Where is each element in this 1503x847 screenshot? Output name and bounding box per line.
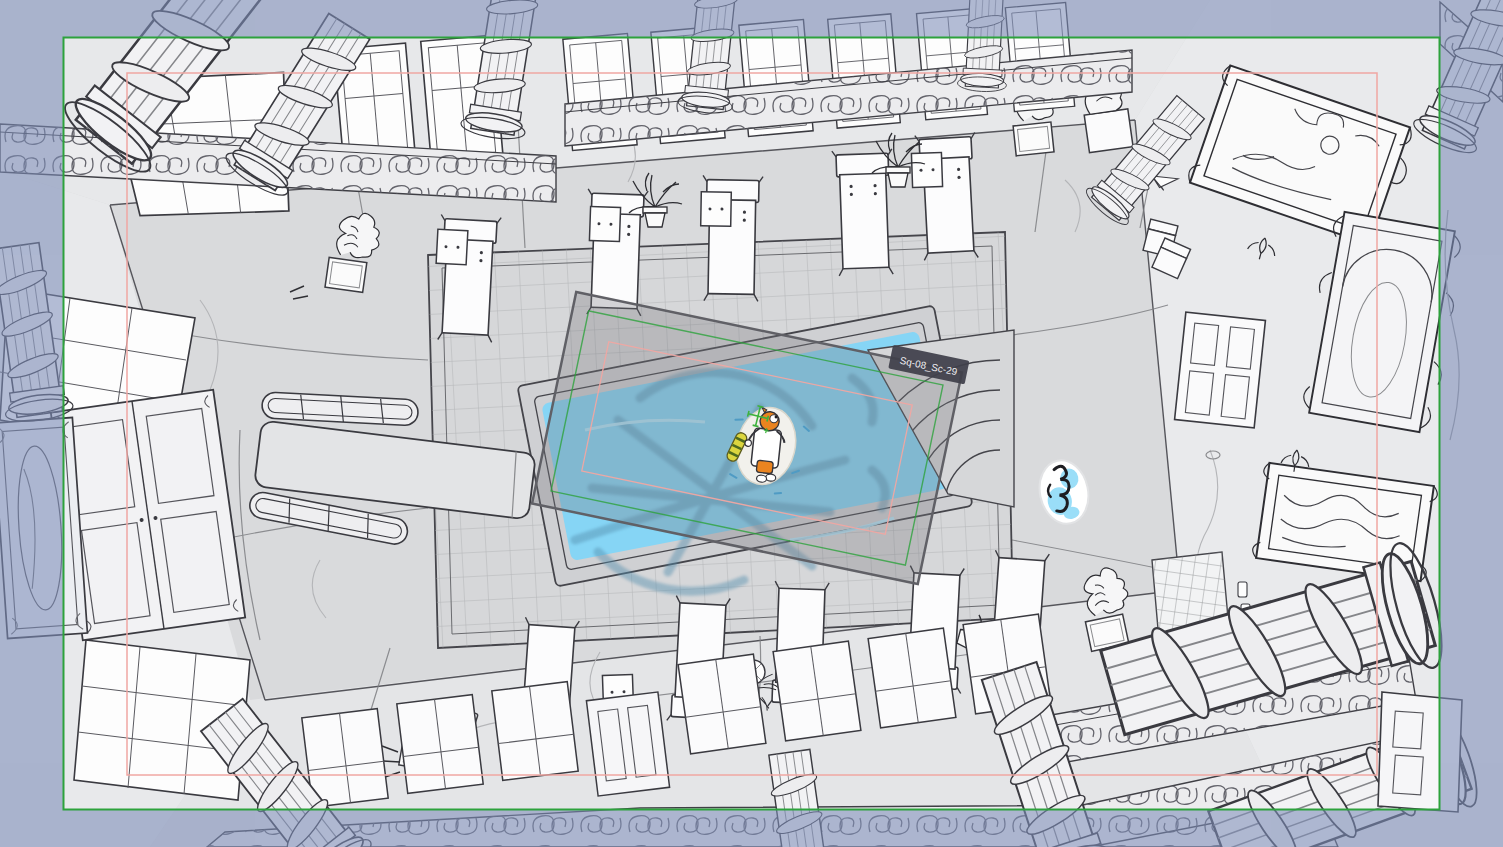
nightstand	[589, 206, 620, 241]
mask-bottom	[0, 810, 1503, 847]
door	[1175, 312, 1266, 428]
window	[678, 654, 766, 754]
mask-right	[1440, 38, 1503, 810]
nightstand	[436, 229, 468, 265]
door	[586, 692, 669, 796]
animation-layout-canvas: Sq-08_Sc-29	[0, 0, 1503, 847]
window	[397, 695, 483, 794]
shorts	[756, 460, 773, 474]
mask-left	[0, 38, 63, 810]
nightstand	[911, 152, 942, 187]
window	[492, 682, 578, 781]
window	[773, 641, 861, 741]
hand	[745, 440, 752, 447]
window	[868, 628, 956, 728]
nightstand	[701, 192, 732, 227]
mask-top	[0, 0, 1503, 38]
